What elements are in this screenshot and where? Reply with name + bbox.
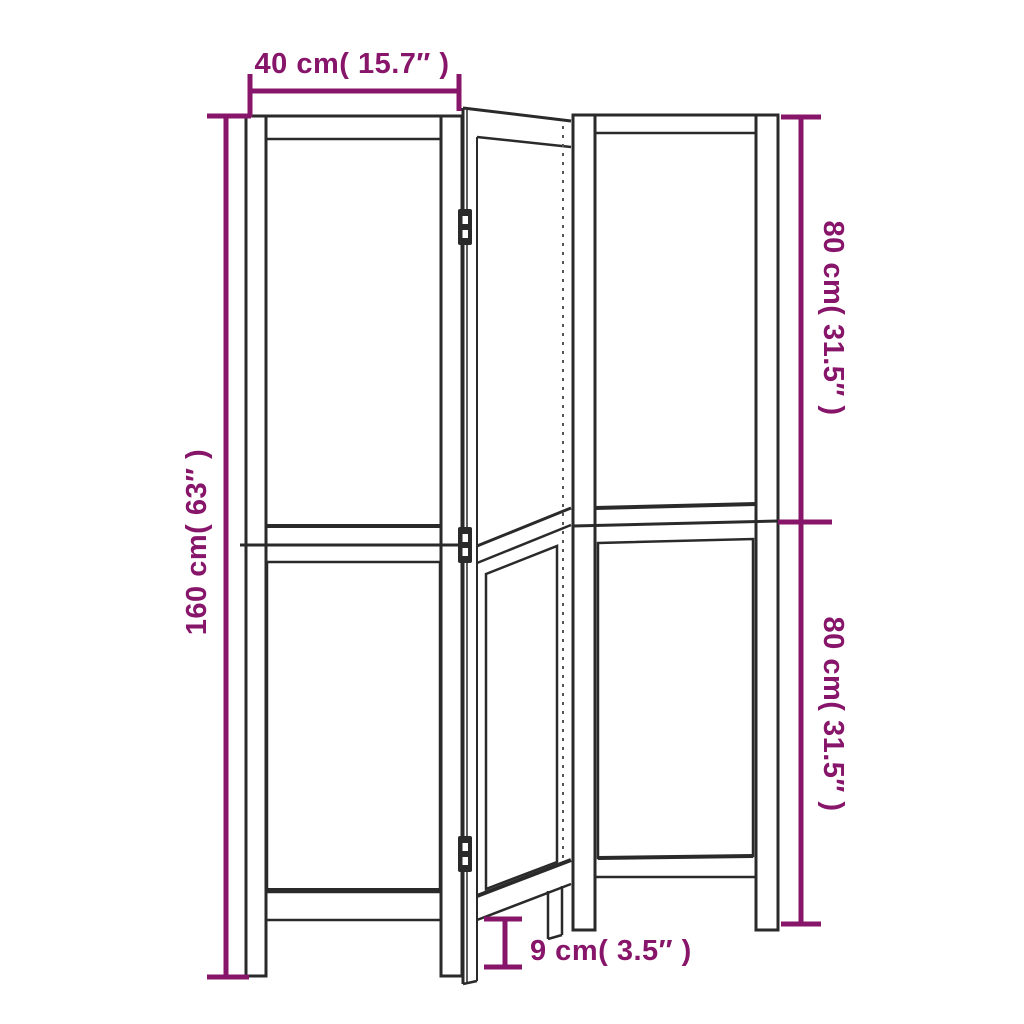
width-dimension: 40 cm( 15.7″ ): [250, 48, 459, 117]
right-panel-mid-rail-trim: [573, 521, 778, 526]
left-panel-lower-inset: [267, 562, 440, 892]
total-height-dimension-label: 160 cm( 63″ ): [181, 449, 213, 635]
dimension-annotations: 40 cm( 15.7″ ) 160 cm( 63″ ) 80 cm( 31.5…: [181, 48, 849, 977]
middle-panel: [463, 108, 571, 984]
middle-panel-right-leg: [548, 886, 562, 939]
right-panel-left-stile: [573, 115, 595, 930]
middle-panel-top-edge: [463, 108, 571, 121]
right-panel-inset-bottom-edge: [598, 856, 753, 858]
hinge-top-icon: [458, 209, 472, 245]
hinge-middle-icon: [458, 527, 472, 563]
middle-panel-top-rail-bottom: [477, 137, 571, 147]
width-dimension-label: 40 cm( 15.7″ ): [255, 48, 450, 80]
hinge-bottom-icon: [458, 836, 472, 872]
room-divider-dimension-diagram: 40 cm( 15.7″ ) 160 cm( 63″ ) 80 cm( 31.5…: [0, 0, 1024, 1024]
upper-section-height-label: 80 cm( 31.5″ ): [817, 221, 849, 416]
lower-section-height-label: 80 cm( 31.5″ ): [817, 617, 849, 812]
section-height-dimensions: 80 cm( 31.5″ ) 80 cm( 31.5″ ): [778, 117, 849, 924]
right-panel: [573, 115, 778, 930]
middle-panel-left-leg-foot: [463, 981, 477, 984]
diagram-canvas: 40 cm( 15.7″ ) 160 cm( 63″ ) 80 cm( 31.5…: [0, 0, 1024, 1024]
middle-panel-mid-rail-top: [477, 508, 571, 546]
ground-clearance-label: 9 cm( 3.5″ ): [530, 935, 692, 967]
right-panel-mid-rail-top: [595, 504, 756, 508]
middle-panel-lower-inset: [486, 546, 557, 889]
right-panel-lower-inset: [598, 539, 753, 858]
left-panel: [240, 116, 466, 976]
